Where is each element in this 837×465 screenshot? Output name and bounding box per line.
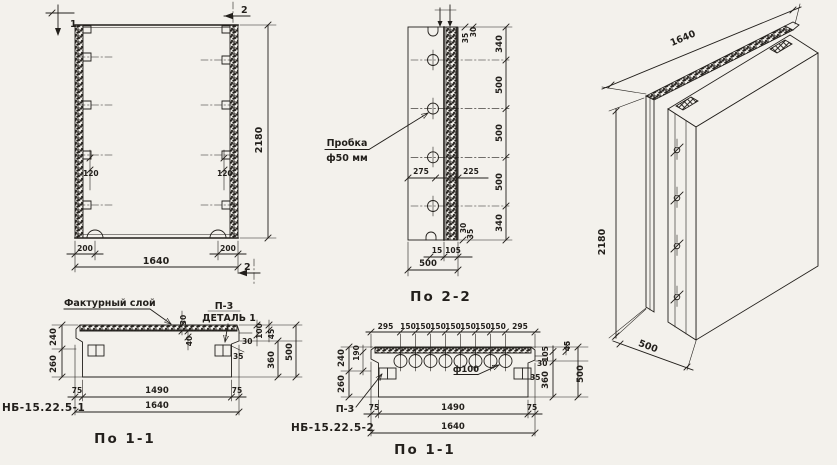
dim-1640-bottom-mid: 1640 [441, 422, 465, 432]
dim-260-mid: 260 [337, 375, 347, 393]
dim-105: 105 [445, 246, 461, 255]
dim-190-mid: 190 [352, 345, 361, 361]
section22-facing-layer [446, 27, 457, 240]
bottom-notch-right [210, 230, 226, 238]
dim-top-150f: 150 [475, 322, 491, 331]
dim-225: 225 [463, 167, 479, 176]
section-mark-2-bottom: 2 [238, 259, 260, 284]
section-mark-1: 1 [46, 5, 77, 36]
isometric-view: 1640 2180 500 [597, 4, 818, 370]
dim-bot-35: 35 [466, 229, 475, 239]
panel-mark-1: НБ-15.22.5-1 [2, 402, 85, 414]
dim-inset-left: 120 [83, 169, 99, 178]
p3-label-left: П-3 [215, 301, 234, 312]
dim-top-150c: 150 [430, 322, 446, 331]
dim-1490-mid: 1490 [441, 403, 465, 413]
dim-500-mid: 500 [576, 365, 586, 383]
svg-text:2: 2 [241, 5, 248, 16]
dim-75-right: 75 [232, 386, 242, 395]
dim-105-mid: 105 [541, 346, 550, 362]
section22-title: По 2-2 [410, 289, 472, 305]
facing-layer-label: Фактурный слой [64, 298, 156, 309]
dim-75-left-mid: 75 [369, 403, 379, 412]
dim-col-340b: 340 [495, 214, 505, 232]
svg-text:1: 1 [70, 19, 77, 30]
dim-col-500b: 500 [495, 124, 505, 142]
dim-360-right: 360 [267, 351, 277, 369]
hole-diameter-label: ф100 [453, 365, 479, 375]
dim-1490: 1490 [145, 386, 169, 396]
technical-drawing-svg: 120 120 200 200 1640 2180 1 2 2 [0, 0, 837, 465]
dim-top-295a: 295 [378, 322, 394, 331]
dim-260-left: 260 [49, 355, 59, 373]
dim-top-30: 30 [469, 27, 478, 37]
plug-label-line2: ф50 мм [326, 153, 367, 164]
dim-top-150a: 150 [400, 322, 416, 331]
section11-mid-title: По 1-1 [394, 442, 456, 458]
dim-height: 2180 [254, 126, 265, 153]
dim-75-left: 75 [72, 386, 82, 395]
dim-240-left: 240 [49, 328, 59, 346]
iso-dim-width: 1640 [669, 28, 698, 49]
section-2-2-view: Пробка ф50 мм 275 225 340 500 500 500 34… [325, 5, 512, 305]
dim-top-150d: 150 [445, 322, 461, 331]
dim-step-30: 30 [242, 337, 252, 346]
dim-top-295b: 295 [512, 322, 528, 331]
dim-500-right: 500 [285, 343, 295, 361]
dim-top-150b: 150 [415, 322, 431, 331]
dim-top-150e: 150 [460, 322, 476, 331]
panel-mark-2: НБ-15.22.5-2 [291, 422, 374, 434]
svg-text:2: 2 [244, 262, 251, 273]
dim-inset-right: 120 [217, 169, 233, 178]
dim-500: 500 [419, 259, 437, 269]
dim-275: 275 [413, 167, 429, 176]
dim-100-right: 100 [255, 323, 264, 339]
dim-col-500c: 500 [495, 173, 505, 191]
p3-label-mid: П-3 [336, 404, 355, 415]
section-1-1-left-view: Фактурный слой П-3 ДЕТАЛЬ 1 30 40 240 26… [2, 298, 302, 447]
iso-side-face [668, 109, 696, 340]
dim-col-340a: 340 [495, 35, 505, 53]
dim-top-150g: 150 [490, 322, 506, 331]
detail1-label: ДЕТАЛЬ 1 [202, 313, 256, 324]
front-view: 120 120 200 200 1640 2180 1 2 2 [46, 2, 276, 284]
dim-edge-left: 200 [77, 244, 93, 253]
dim-1640-bottom: 1640 [145, 401, 169, 411]
dim-360-mid: 360 [541, 371, 551, 389]
dim-45-mid: 45 [563, 341, 572, 351]
bottom-notch-left [87, 230, 103, 238]
iso-dim-depth: 500 [637, 338, 660, 356]
section11-mid-facing-layer [375, 347, 531, 353]
section11-left-title: По 1-1 [94, 431, 156, 447]
dim-edge-right: 200 [220, 244, 236, 253]
dim-45-right: 45 [267, 329, 276, 339]
dim-15: 15 [432, 246, 442, 255]
dim-width: 1640 [143, 256, 170, 267]
plug-callout: Пробка ф50 мм [325, 113, 428, 164]
front-right-edge-strip [230, 25, 238, 238]
section11-left-facing-layer [80, 325, 237, 331]
dim-col-500a: 500 [495, 76, 505, 94]
plug-label-line1: Пробка [327, 138, 368, 149]
dim-30-facing: 30 [179, 315, 188, 325]
dim-240-mid: 240 [337, 349, 347, 367]
dim-step-35: 35 [233, 352, 243, 361]
iso-dim-height: 2180 [597, 228, 608, 255]
drawing-canvas: 120 120 200 200 1640 2180 1 2 2 [0, 0, 837, 465]
dim-40-layer: 40 [185, 336, 194, 346]
dim-75-right-mid: 75 [527, 403, 537, 412]
section-1-1-mid-view: 295 150 150 150 150 150 150 150 295 ф100… [291, 322, 588, 458]
